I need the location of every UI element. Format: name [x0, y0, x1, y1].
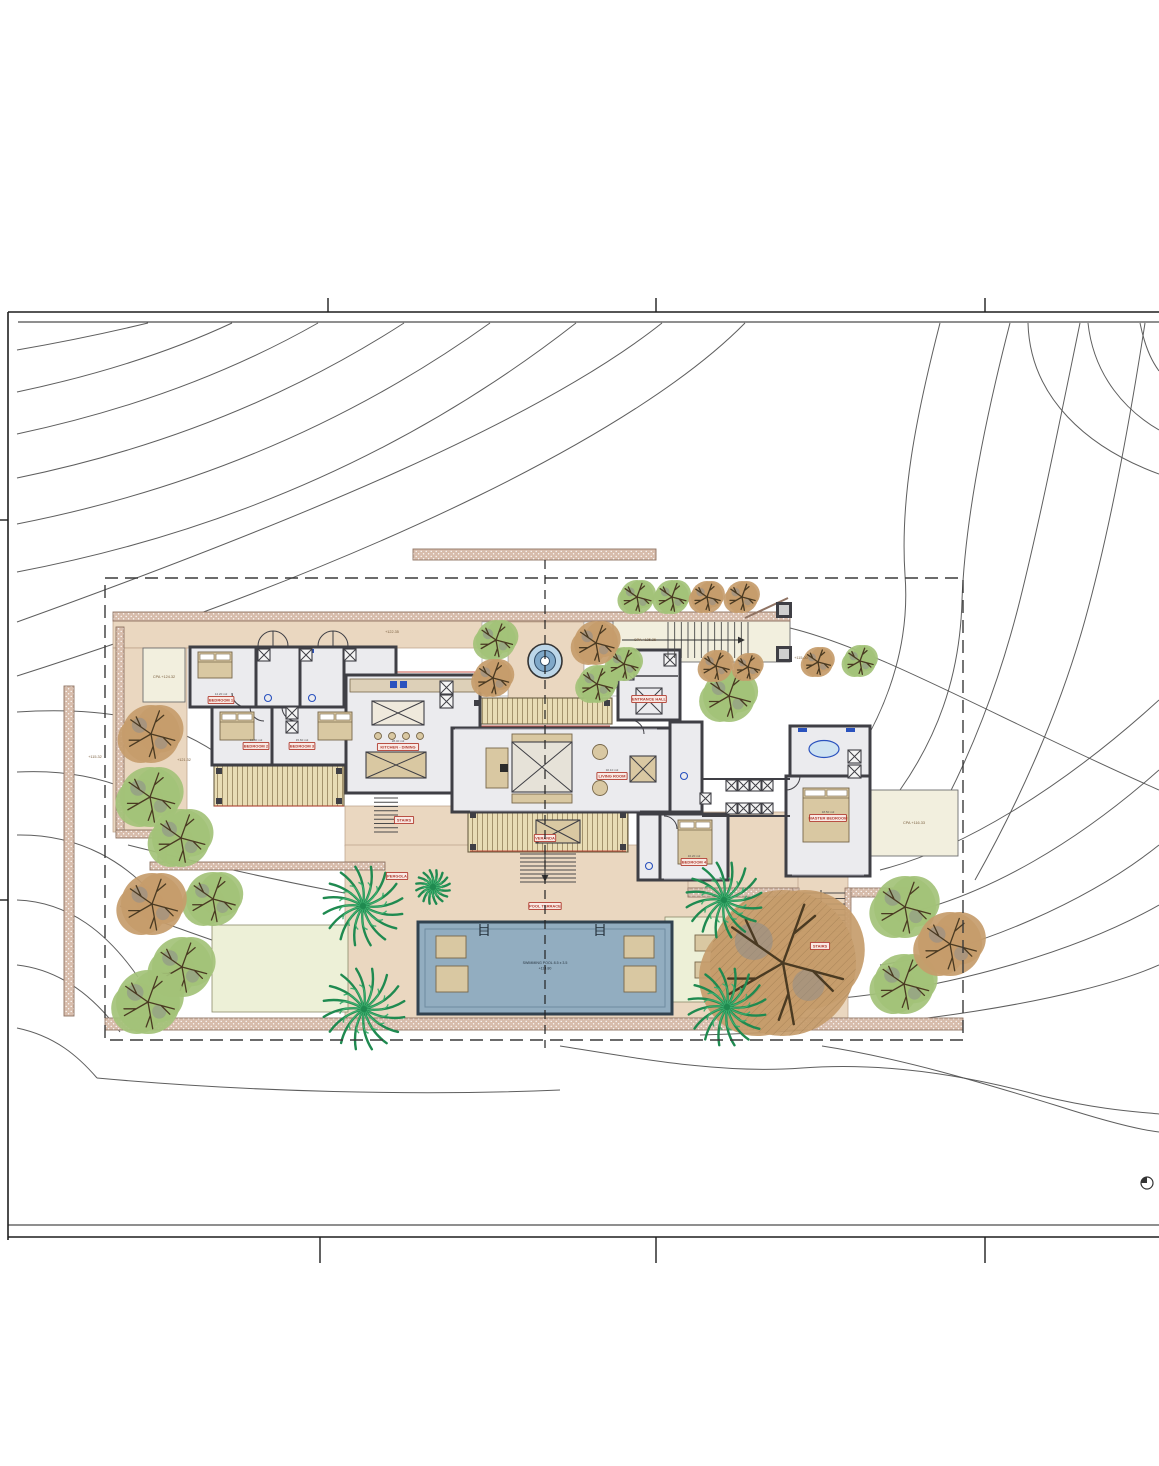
contour-line	[97, 1078, 560, 1093]
pool-lounger	[436, 936, 466, 958]
elevation-label: CPA +125.35	[634, 638, 656, 642]
room-label-pergola: PERGOLA	[386, 872, 407, 879]
x-box	[726, 780, 737, 791]
bed-icon	[198, 652, 232, 678]
gate-pier-south-cap	[779, 649, 789, 659]
svg-text:15.60 m2: 15.60 m2	[296, 738, 309, 742]
site-plan-drawing: SWIMMING POOL 8.5 x 3.5 +114.80 14.20 m2…	[0, 0, 1159, 1466]
stool-4	[417, 733, 424, 740]
deck-post	[216, 798, 222, 804]
elevation-label: +115.00	[794, 656, 808, 660]
x-box	[258, 649, 270, 661]
x-box	[300, 649, 312, 661]
contour-line	[17, 323, 490, 524]
upper-retaining-wall	[413, 549, 656, 560]
tree-green-icon	[842, 645, 878, 677]
x-box	[344, 649, 356, 661]
contour-line	[930, 323, 1080, 830]
x-box	[372, 701, 424, 725]
tree-brown-icon	[801, 647, 835, 677]
room-label-entrance-hall: ENTRANCE HALL	[632, 695, 667, 702]
x-box	[700, 793, 711, 804]
veranda-post	[470, 812, 476, 818]
svg-text:BEDROOM 2: BEDROOM 2	[244, 744, 269, 749]
pool-lounger	[624, 936, 654, 958]
x-box	[366, 752, 426, 778]
elevation-label: +122.35	[385, 630, 399, 634]
svg-text:KITCHEN - DINING: KITCHEN - DINING	[380, 745, 415, 750]
svg-text:16.20 m2: 16.20 m2	[688, 854, 701, 858]
contour-line	[560, 1046, 1159, 1114]
fireplace-icon	[500, 764, 508, 772]
plan-sheet: SWIMMING POOL 8.5 x 3.5 +114.80 14.20 m2…	[0, 0, 1159, 1466]
x-box	[762, 803, 773, 814]
armchair-1	[593, 745, 608, 760]
contour-line	[900, 323, 1010, 790]
svg-text:32.10 m2: 32.10 m2	[606, 768, 619, 772]
elevation-label: +121.32	[177, 758, 191, 762]
svg-text:ENTRANCE HALL: ENTRANCE HALL	[632, 697, 667, 702]
gate-pier-north-cap	[779, 605, 789, 615]
contour-line	[860, 323, 940, 750]
x-box	[738, 780, 749, 791]
elevation-label: CPA +116.33	[903, 821, 925, 825]
pergola-post	[474, 700, 480, 706]
x-box	[848, 765, 861, 778]
contour-line	[1140, 323, 1159, 371]
room-corridor-wc	[670, 722, 702, 812]
room-label-stairs: STAIRS	[394, 816, 413, 823]
sofa-south	[512, 794, 572, 803]
stool-1	[375, 733, 382, 740]
oven-icon	[400, 681, 407, 688]
north-indicator-icon	[1141, 1177, 1153, 1189]
x-box	[726, 803, 737, 814]
veranda-post	[620, 812, 626, 818]
x-box	[286, 721, 298, 733]
svg-text:PERGOLA: PERGOLA	[387, 874, 407, 879]
svg-text:STAIRS: STAIRS	[813, 944, 828, 949]
elevation-label: +115.32	[88, 755, 102, 759]
bed-icon	[220, 712, 254, 740]
svg-text:13.80 m2: 13.80 m2	[250, 738, 263, 742]
svg-text:BEDROOM 1: BEDROOM 1	[209, 698, 234, 703]
x-box	[750, 803, 761, 814]
room-label-stairs: STAIRS	[810, 942, 829, 949]
contour-line	[975, 323, 1145, 880]
contour-line	[822, 1046, 1159, 1132]
x-box	[664, 654, 676, 666]
deck-post	[336, 768, 342, 774]
contour-line	[17, 323, 404, 478]
south-walkway	[105, 1018, 963, 1030]
contour-line	[17, 323, 148, 350]
svg-text:STAIRS: STAIRS	[397, 818, 412, 823]
x-box	[762, 780, 773, 791]
x-box	[440, 695, 453, 708]
x-box	[440, 681, 453, 694]
kitchen-counter	[350, 679, 476, 692]
x-box	[286, 707, 298, 719]
contour-line	[17, 1028, 97, 1078]
tree-green-icon	[617, 580, 656, 614]
svg-text:BEDROOM 3: BEDROOM 3	[290, 744, 315, 749]
x-box	[512, 742, 572, 792]
tree-green-icon	[182, 872, 243, 926]
elevation-label: CPA +124.32	[153, 675, 175, 679]
contour-line	[1088, 323, 1159, 430]
contour-line	[17, 323, 232, 392]
svg-text:18.50 m2: 18.50 m2	[822, 810, 835, 814]
west-wing-deck	[214, 766, 344, 806]
x-box	[738, 803, 749, 814]
pool-lounger	[624, 966, 656, 992]
site-top-wall	[113, 612, 790, 621]
tree-brown-icon	[116, 873, 186, 935]
bathtub-icon	[809, 741, 839, 758]
lawn-west	[212, 925, 348, 1012]
contour-line	[17, 323, 576, 572]
deck-post	[216, 768, 222, 774]
master-sink-2-icon	[846, 728, 855, 732]
veranda-post	[470, 844, 476, 850]
x-box	[750, 780, 761, 791]
bed-icon	[318, 712, 352, 740]
armchair-2	[593, 781, 608, 796]
svg-text:MASTER BEDROOM: MASTER BEDROOM	[809, 816, 849, 821]
tree-green-icon	[652, 580, 691, 614]
tree-brown-icon	[689, 581, 725, 613]
svg-text:28.40 m2: 28.40 m2	[392, 739, 405, 743]
cooktop-icon	[390, 681, 397, 688]
svg-text:14.20 m2: 14.20 m2	[215, 692, 228, 696]
x-box	[630, 756, 656, 782]
contour-line	[17, 323, 318, 434]
room-bath-4	[638, 814, 660, 880]
veranda-post	[620, 844, 626, 850]
master-sink-1-icon	[798, 728, 807, 732]
x-box	[848, 750, 861, 763]
west-boundary-wall	[64, 686, 74, 1016]
svg-text:LIVING ROOM: LIVING ROOM	[599, 774, 627, 779]
contour-line	[1028, 323, 1159, 474]
deck-post	[336, 798, 342, 804]
pool-lounger	[436, 966, 468, 992]
svg-text:BEDROOM 4: BEDROOM 4	[682, 860, 707, 865]
pool-label: SWIMMING POOL 8.5 x 3.5	[523, 961, 568, 965]
tree-brown-icon	[724, 581, 760, 613]
